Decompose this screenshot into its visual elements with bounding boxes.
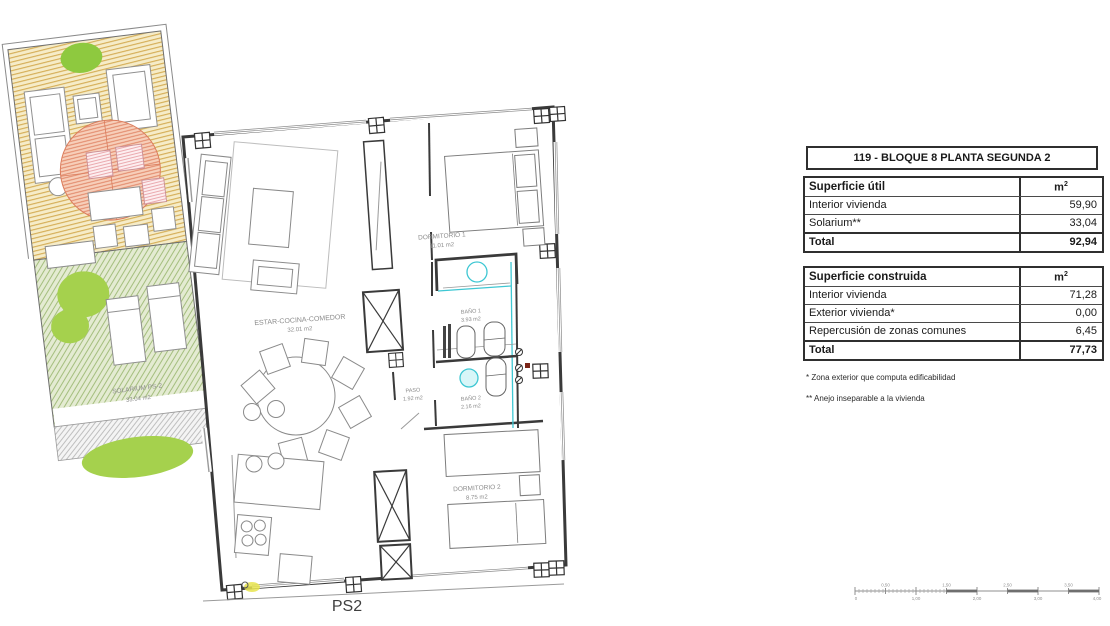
total-value: 92,94 [1019, 234, 1102, 251]
plan-title-text: 119 - BLOQUE 8 PLANTA SEGUNDA 2 [853, 152, 1050, 164]
row-label: Exterior vivienda* [805, 305, 1019, 322]
sheet-code-label: PS2 [332, 598, 362, 615]
footnote-2: ** Anejo inseparable a la vivienda [806, 394, 925, 403]
meter-mark [525, 363, 530, 368]
row-value: 71,28 [1019, 287, 1102, 304]
unit-m: m [1054, 271, 1064, 283]
total-label: Total [805, 342, 1019, 359]
scale-bottom-label: 4,00 [1093, 596, 1102, 601]
sink-icon [268, 453, 284, 469]
table-header-label: Superficie construida [805, 268, 1019, 286]
table-row: Repercusión de zonas comunes 6,45 [805, 322, 1102, 340]
scale-bar: 0,50 1,50 2,50 3,50 0 1,00 2,00 3,00 4,0… [853, 583, 1105, 601]
table-header-row: Superficie construida m2 [805, 268, 1102, 286]
stool [268, 401, 285, 418]
paso-label: PASO [405, 387, 421, 394]
scale-top-label: 0,50 [881, 583, 890, 588]
table-row: Interior vivienda 71,28 [805, 286, 1102, 304]
highlight-mark [244, 582, 260, 592]
table-header-unit: m2 [1019, 268, 1102, 286]
stool [244, 404, 261, 421]
built-area-table: Superficie construida m2 Interior vivien… [803, 266, 1104, 361]
scale-top-label: 3,50 [1064, 583, 1073, 588]
table-total-row: Total 77,73 [805, 340, 1102, 359]
plan-title: 119 - BLOQUE 8 PLANTA SEGUNDA 2 [806, 146, 1098, 170]
valve-icons [516, 349, 523, 384]
table-header-row: Superficie útil m2 [805, 178, 1102, 196]
floorplan-sheet: SOLARIUM PS-2 33.04 m2 [0, 0, 1110, 626]
row-value: 33,04 [1019, 215, 1102, 232]
table-row: Interior vivienda 59,90 [805, 196, 1102, 214]
apartment-unit [183, 106, 566, 601]
row-value: 0,00 [1019, 305, 1102, 322]
armchair [251, 260, 299, 294]
toilet-icon [486, 358, 506, 396]
sink-icon [246, 456, 262, 472]
bano2-label: BAÑO 2 [461, 394, 482, 402]
row-value: 59,90 [1019, 197, 1102, 214]
dormitorio2-area: 8.75 m2 [466, 494, 489, 501]
row-label: Interior vivienda [805, 287, 1019, 304]
towel-rail [443, 326, 446, 358]
total-value: 77,73 [1019, 342, 1102, 359]
row-label: Solarium** [805, 215, 1019, 232]
kitchen-island [278, 554, 312, 585]
scale-bottom-label: 2,00 [973, 596, 982, 601]
washbasin-icon [460, 369, 478, 387]
row-value: 6,45 [1019, 323, 1102, 340]
cooktop-icon [234, 515, 271, 556]
total-label: Total [805, 234, 1019, 251]
table-header-unit: m2 [1019, 178, 1102, 196]
towel-rail [448, 324, 451, 358]
unit-sup: 2 [1064, 181, 1068, 188]
scale-bottom-label: 1,00 [912, 596, 921, 601]
table-row: Solarium** 33,04 [805, 214, 1102, 232]
coffee-table [249, 188, 294, 247]
table-row: Exterior vivienda* 0,00 [805, 304, 1102, 322]
row-label: Repercusión de zonas comunes [805, 323, 1019, 340]
bidet-icon [457, 326, 475, 358]
scale-bottom-label: 0 [855, 596, 858, 601]
footnote-1: * Zona exterior que computa edificabilid… [806, 373, 955, 382]
floorplan-drawing: SOLARIUM PS-2 33.04 m2 [0, 0, 780, 626]
bano1-label: BAÑO 1 [461, 307, 482, 315]
table-header-label: Superficie útil [805, 178, 1019, 196]
row-label: Interior vivienda [805, 197, 1019, 214]
scale-bottom-label: 3,00 [1034, 596, 1043, 601]
scale-top-label: 1,50 [942, 583, 951, 588]
unit-sup: 2 [1064, 271, 1068, 278]
useful-area-table: Superficie útil m2 Interior vivienda 59,… [803, 176, 1104, 253]
unit-m: m [1054, 181, 1064, 193]
table-total-row: Total 92,94 [805, 232, 1102, 251]
scale-top-label: 2,50 [1003, 583, 1012, 588]
terrace-solarium-block: SOLARIUM PS-2 33.04 m2 [2, 24, 220, 487]
